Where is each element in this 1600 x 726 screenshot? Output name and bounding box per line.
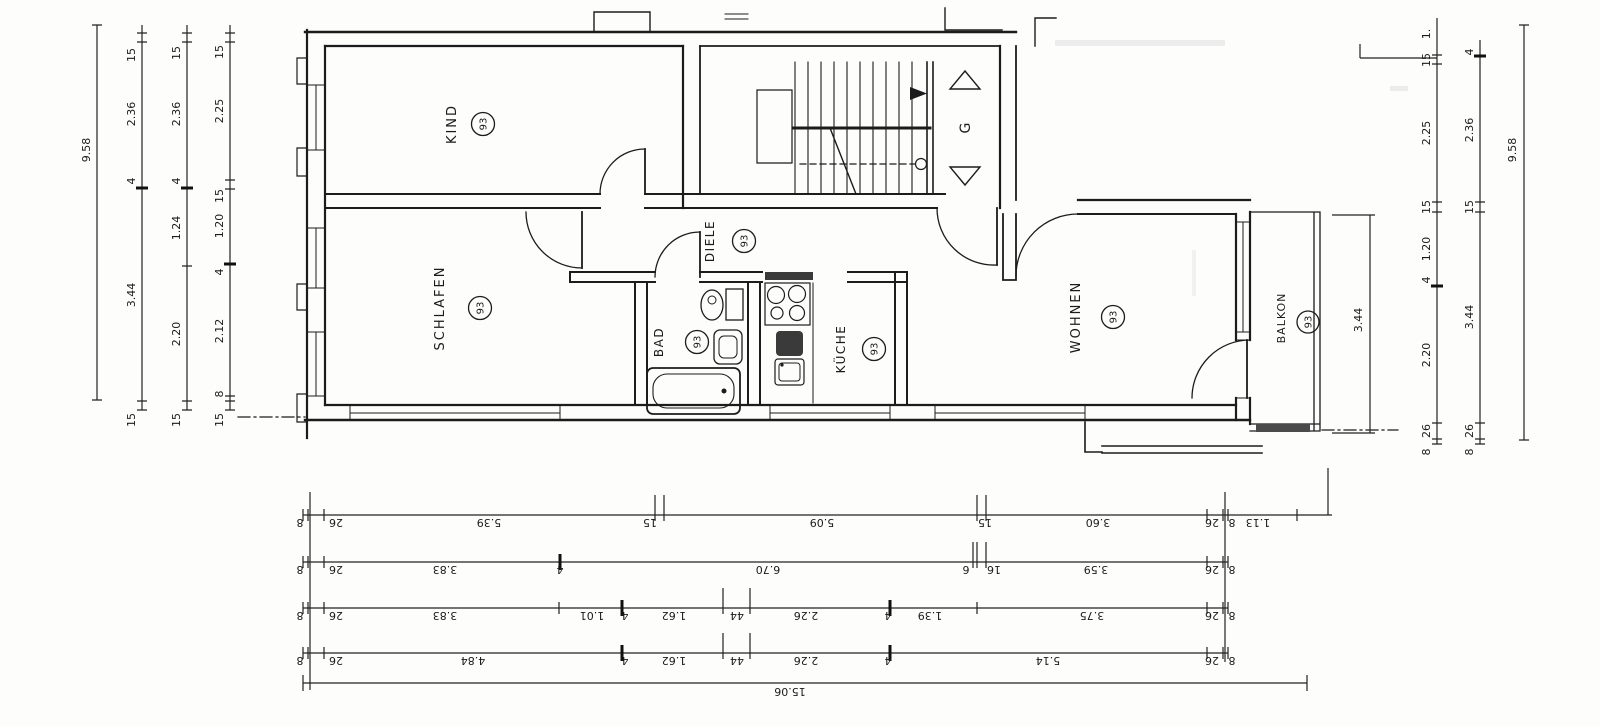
bathtub-drain xyxy=(722,389,727,394)
dim-label: 26 xyxy=(329,609,343,622)
wall-step-below xyxy=(1085,422,1262,453)
burner-4 xyxy=(790,306,805,321)
dim-label: 26 xyxy=(329,563,343,576)
dim-chain-bottom-2: 8 26 3.83 4 6.70 6 16 3.59 26 8 xyxy=(297,542,1236,576)
dim-label: 15 xyxy=(213,413,226,427)
dim-chain-left-b: 15 2.36 4 3.44 15 xyxy=(125,25,148,427)
area-value-balkon: 93 xyxy=(1304,316,1315,329)
scan-smudge-1 xyxy=(1055,40,1225,46)
dim-label: 4 xyxy=(213,269,226,276)
kitchen-sink-tap xyxy=(780,363,783,366)
dim-label: 8 xyxy=(1229,516,1236,529)
toilet-inner xyxy=(708,296,716,304)
toilet-tank xyxy=(726,289,743,320)
dim-label: 26 xyxy=(329,516,343,529)
dim-label: 1.01 xyxy=(580,609,605,622)
dim-label: 26 xyxy=(1205,563,1219,576)
fixtures xyxy=(647,272,813,414)
scan-smudge-2 xyxy=(1390,86,1408,91)
dim-label: 26 xyxy=(1420,424,1433,438)
area-value-bad: 93 xyxy=(693,336,704,349)
burner-3 xyxy=(771,307,783,319)
dim-chain-left-total: 9.58 xyxy=(80,25,102,400)
room-label-diele: DIELE xyxy=(703,220,717,262)
dim-label: 2.25 xyxy=(213,99,226,124)
dim-label: 15 xyxy=(125,413,138,427)
dim-label: 26 xyxy=(1463,424,1476,438)
dim-label: 8 xyxy=(1229,609,1236,622)
dim-label: 3.44 xyxy=(1352,308,1365,333)
scan-smudge-3 xyxy=(1192,250,1196,296)
dim-label: 1.20 xyxy=(213,214,226,239)
dim-label: 8 xyxy=(297,609,304,622)
dim-label: 3.44 xyxy=(125,283,138,308)
dim-label: 15 xyxy=(213,45,226,59)
dim-label: 6 xyxy=(963,563,970,576)
dim-label: 3.75 xyxy=(1080,609,1105,622)
dim-label: 3.44 xyxy=(1463,305,1476,330)
dim-label: 8 xyxy=(213,391,226,398)
dim-chain-bottom-3: 8 26 3.83 1.01 4 1.62 44 2.26 4 1.39 3.7… xyxy=(297,588,1236,622)
scan-artifacts xyxy=(1055,40,1408,296)
room-label-schlafen: SCHLAFEN xyxy=(433,266,448,351)
dim-label: 2.36 xyxy=(170,102,183,127)
bad-sink-inner xyxy=(719,336,737,358)
dim-label: 1.62 xyxy=(662,654,687,667)
kitchen-counter xyxy=(765,272,813,280)
room-label-bad: BAD xyxy=(652,327,666,357)
dim-label: 4 xyxy=(622,609,629,622)
wall-kueche-right xyxy=(895,272,907,405)
dim-label: 4 xyxy=(885,609,892,622)
dim-label: 1.62 xyxy=(662,609,687,622)
bad-sink-icon xyxy=(714,330,742,364)
dim-label: 2.36 xyxy=(125,102,138,127)
dim-label: 8 xyxy=(297,654,304,667)
wall-neighbor-top2 xyxy=(1035,18,1056,46)
stair-arrow-icon xyxy=(910,87,927,100)
room-label-wohnen: WOHNEN xyxy=(1069,281,1084,354)
room-labels: KIND 93 SCHLAFEN 93 DIELE 93 BAD 93 KÜCH… xyxy=(433,104,1319,373)
dim-chain-left-c: 15 2.36 4 1.24 2.20 15 xyxy=(170,25,193,427)
dim-label: 15 xyxy=(1420,53,1433,67)
dim-label: 2.36 xyxy=(1463,118,1476,143)
area-value-diele: 93 xyxy=(740,235,751,248)
arrow-down-icon xyxy=(950,167,980,185)
dim-label: 26 xyxy=(1205,654,1219,667)
dim-chain-bottom-total: 15.06 xyxy=(303,675,1307,698)
dim-label: 26 xyxy=(1205,609,1219,622)
wall-entry-nook xyxy=(1003,214,1016,280)
dim-label: 4 xyxy=(557,563,564,576)
dim-label: 3.59 xyxy=(1084,563,1109,576)
dim-label: 5.39 xyxy=(477,516,502,529)
dim-label: 8 xyxy=(1420,449,1433,456)
dim-label: 15 xyxy=(170,413,183,427)
dim-chain-bottom-4: 8 26 4.84 4 1.62 44 2.26 4 5.14 26 8 xyxy=(297,633,1236,667)
stairwell: G xyxy=(757,62,980,194)
dim-label: 15 xyxy=(643,516,657,529)
scan-marks-top xyxy=(725,14,748,19)
dim-label: 5.14 xyxy=(1036,654,1061,667)
dim-chain-left-d: 15 2.25 15 1.20 4 2.12 8 15 xyxy=(213,25,236,427)
dim-label: 26 xyxy=(329,654,343,667)
dim-label: 9.58 xyxy=(1506,138,1519,163)
dim-label: 15 xyxy=(978,516,992,529)
dim-label: 2.26 xyxy=(794,654,819,667)
room-label-kueche: KÜCHE xyxy=(832,325,848,374)
dim-label: 4 xyxy=(1420,277,1433,284)
oven-icon xyxy=(776,331,803,356)
door-arc-entry xyxy=(937,208,997,265)
dim-chain-right-total: 9.58 xyxy=(1506,25,1529,440)
area-value-schlafen: 93 xyxy=(476,302,487,315)
room-label-kind: KIND xyxy=(445,104,460,144)
balcony-slab-hatch xyxy=(1256,424,1310,432)
room-label-balkon: BALKON xyxy=(1275,293,1288,344)
dim-label: 1.39 xyxy=(918,609,943,622)
dim-label: 26 xyxy=(1205,516,1219,529)
dim-label: 3.83 xyxy=(433,609,458,622)
area-value-wohnen: 93 xyxy=(1109,311,1120,324)
wall-corridor-bottom-1 xyxy=(570,272,655,282)
wall-bad-right xyxy=(748,282,760,405)
dim-label: 2.26 xyxy=(794,609,819,622)
dim-label: 4.84 xyxy=(461,654,486,667)
dim-label: 15 xyxy=(1463,200,1476,214)
dim-label: 4 xyxy=(622,654,629,667)
dim-label: 16 xyxy=(987,563,1001,576)
dim-chain-bottom-1: 8 26 5.39 15 5.09 15 3.60 26 8 1.13 xyxy=(297,468,1333,529)
dim-label: 15 xyxy=(213,189,226,203)
dim-label: 2.20 xyxy=(170,322,183,347)
door-arc-schlafen xyxy=(526,212,582,268)
wall-bad-left xyxy=(635,282,647,405)
door-arc-wohnen xyxy=(1016,214,1078,276)
floor-plan-drawing: G KIND 93 xyxy=(0,0,1600,726)
wall-neighbor-top xyxy=(945,8,1002,30)
walls xyxy=(238,8,1398,453)
dim-label: 1.24 xyxy=(170,216,183,241)
dim-label: 2.12 xyxy=(213,319,226,344)
dim-label: 15 xyxy=(1420,200,1433,214)
area-value-kind: 93 xyxy=(479,118,490,131)
dim-label: 1. xyxy=(1420,29,1433,40)
area-value-kueche: 93 xyxy=(870,343,881,356)
wall-piers-left xyxy=(297,58,307,422)
dim-chain-balcony: 3.44 xyxy=(1332,215,1375,433)
wall-corridor-bottom-2 xyxy=(700,272,762,282)
dim-label: 3.83 xyxy=(433,563,458,576)
stair-eye-wall xyxy=(757,90,792,163)
dim-label: 8 xyxy=(1229,563,1236,576)
stove-icon xyxy=(765,283,810,325)
dim-label: 5.09 xyxy=(810,516,835,529)
dim-label: 8 xyxy=(1463,449,1476,456)
dim-label: 44 xyxy=(730,654,744,667)
stair-start-circle xyxy=(916,159,927,170)
door-arc-kind xyxy=(600,149,645,194)
arrow-up-icon xyxy=(950,71,980,89)
dim-label: 1.13 xyxy=(1246,516,1271,529)
dim-label: 6.70 xyxy=(756,563,781,576)
dim-label: 1.20 xyxy=(1420,237,1433,262)
dim-label: 15 xyxy=(125,48,138,62)
floor-plan-scan: G KIND 93 xyxy=(0,0,1600,726)
dim-label: 44 xyxy=(730,609,744,622)
dim-label: 4 xyxy=(1463,49,1476,56)
burner-2 xyxy=(789,286,806,303)
dim-label: 8 xyxy=(297,516,304,529)
burner-1 xyxy=(768,287,785,304)
dim-chain-right-2: 4 2.36 15 3.44 26 8 xyxy=(1463,40,1486,456)
dim-chain-right-1: 1. 15 2.25 15 1.20 4 2.20 26 8 xyxy=(1360,18,1443,456)
dim-label: 15 xyxy=(170,46,183,60)
dim-label: 8 xyxy=(297,563,304,576)
dim-label: 4 xyxy=(125,178,138,185)
door-arc-bad xyxy=(655,232,700,277)
dim-label: 4 xyxy=(170,178,183,185)
stair-landing-label: G xyxy=(958,123,974,134)
toilet-icon xyxy=(701,290,723,320)
wall-corridor-bottom-3 xyxy=(848,272,907,282)
dim-label: 4 xyxy=(885,654,892,667)
dim-label: 15.06 xyxy=(774,685,806,698)
dim-label: 2.25 xyxy=(1420,121,1433,146)
door-arc-balkon xyxy=(1192,340,1250,398)
dim-label: 3.60 xyxy=(1086,516,1111,529)
wall-notch-top xyxy=(594,12,650,32)
dim-label: 2.20 xyxy=(1420,343,1433,368)
dim-label: 8 xyxy=(1229,654,1236,667)
dim-label: 9.58 xyxy=(80,138,93,163)
